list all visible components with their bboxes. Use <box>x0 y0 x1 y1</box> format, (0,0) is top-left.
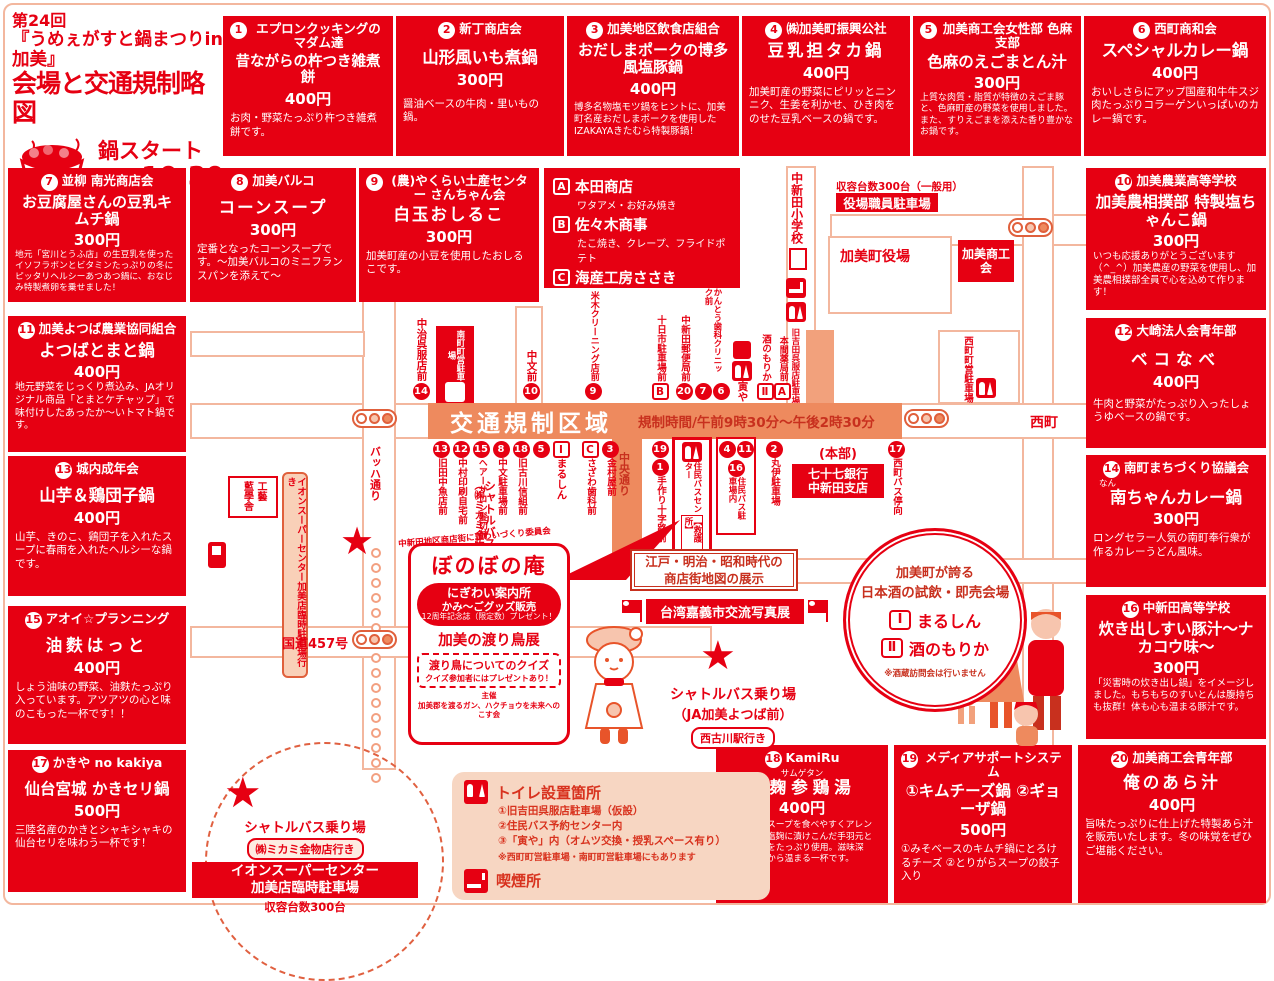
booth-marker: 13 <box>433 441 450 458</box>
booth-marker: 2 <box>766 441 783 458</box>
toilet-icon <box>682 442 702 462</box>
sake-site-marker: Ⅰ <box>553 441 570 458</box>
toilet-legend-title: トイレ設置箇所 <box>496 782 601 803</box>
title-map: 会場と交通規制略図 <box>12 70 224 128</box>
booth-number: 10 <box>1115 174 1132 191</box>
regulation-zone-label: 交通規制区域 <box>450 404 612 438</box>
mascot-illustration <box>574 620 654 746</box>
destination-badge: ㈱ミカミ金物店行き <box>247 838 364 860</box>
booth-marker: C <box>582 441 599 458</box>
shuttle-stop-ja: シャトルバス乗り場 （JA加美よつば前） 西古川駅行き <box>648 684 818 749</box>
route457-label: 国道457号 <box>282 633 348 652</box>
booth-marker: 15 <box>473 441 490 458</box>
map-spot: 中新田郵便局前 20 <box>672 288 696 402</box>
bank-branch: 中新田支店 <box>808 481 868 495</box>
booth-box-7: 7並柳 南光商店会 お豆腐屋さんの豆乳キムチ鍋 300円 地元「宮川とうふ店」の… <box>8 168 186 302</box>
booth-box-5: 5加美商工会女性部 色麻支部 色麻のえごまとん汁 300円 上質な肉質・脂質が特… <box>913 16 1081 156</box>
site-2-marker: Ⅱ <box>881 638 903 658</box>
minamimachi-parking-label: 南町町営駐車場 <box>446 328 464 382</box>
booth-number: 4 <box>765 22 782 39</box>
booth-box-15: 15アオイ☆プランニング 油麩はっと 400円 しょう油味の野菜、油麩たっぷり入… <box>8 606 186 744</box>
road-west-h <box>190 331 365 357</box>
booth-number: 3 <box>586 22 603 39</box>
booth-box-1: 1エプロンクッキングのマダム達 昔ながらの杵つき雑煮餅 400円 お肉・野菜たっ… <box>223 16 393 156</box>
sake-tasting-circle: 加美町が誇る 日本酒の試飲・即売会場 Ⅰまるしん Ⅱ酒のもりか ※酒蔵訪問会は行… <box>843 528 1027 712</box>
booth-marker: 8 <box>493 441 510 458</box>
booth-number: 6 <box>1133 22 1150 39</box>
booth-marker: A <box>774 383 791 400</box>
booth-number: 8 <box>231 174 248 191</box>
page-title: 第24回 『うめぇがすと鍋まつりin加美』 会場と交通規制略図 鍋スタート 10… <box>12 12 224 191</box>
traffic-light-icon <box>1008 218 1053 237</box>
bonobono-title: ぼのぼの庵 <box>415 550 563 580</box>
facility-legend-box: トイレ設置箇所 ①旧吉田呉服店駐車場（仮設） ②住民バス予約センター内 ③「寅や… <box>452 772 770 900</box>
map-spot: 米木クリーニング店前 9 <box>581 288 605 402</box>
booth-number: 14 <box>1103 461 1120 478</box>
title-edition: 第24回 <box>12 12 224 30</box>
booth-marker: 11 <box>737 441 754 458</box>
office-parking-box: 役場職員駐車場 <box>836 193 938 212</box>
booth-number: 12 <box>1115 324 1132 341</box>
booth-number: 20 <box>1111 751 1128 768</box>
booth-box-2: 2新丁商店会 山形風いも煮鍋 300円 醤油ベースの牛肉・里いもの鍋。 <box>396 16 564 156</box>
facility-e-icon <box>733 341 751 359</box>
map-spot: 2 丸伊駐車場 <box>762 441 786 506</box>
booth-number: 7 <box>41 174 58 191</box>
traffic-light-icon <box>904 409 949 428</box>
school-building-icon <box>789 248 807 270</box>
booth-marker: 3 <box>602 441 619 458</box>
road-stub <box>806 330 834 405</box>
booth-box-13: 13城内成年会 山芋＆鶏団子鍋 400円 山芋、きのこ、鶏団子を入れたスープに春… <box>8 456 186 596</box>
edo-map-exhibit-box: 江戸・明治・昭和時代の 商店街地図の展示 <box>630 549 798 591</box>
map-spot: 中治呉服店前 14 <box>409 288 433 402</box>
booth-number: 16 <box>1122 601 1139 618</box>
booth-number: 2 <box>438 22 455 39</box>
hq-bank: (本部) 七十七銀行 中新田支店 <box>792 443 884 498</box>
booth-box-17: 17かきや no kakiya 仙台宮城 かきセリ鍋 500円 三陸名産のかきと… <box>8 750 186 892</box>
traffic-light-icon <box>352 409 397 428</box>
town-hall-label: 加美町役場 <box>840 246 910 266</box>
map-spot: 寅や <box>730 288 754 402</box>
booth-marker: 4 <box>719 441 736 458</box>
booth-marker: 18 <box>513 441 530 458</box>
school-label: 中新田小学校 <box>790 172 803 244</box>
booth-marker: 10 <box>523 383 540 400</box>
toilet-icon <box>464 780 488 804</box>
site-1-marker: Ⅰ <box>889 610 911 630</box>
toilet-icon <box>445 382 465 402</box>
nishimachi-parking-label: 西町町営駐車場 <box>962 336 972 403</box>
booth-marker: 17 <box>888 441 905 458</box>
title-festival: 『うめぇがすと鍋まつりin加美』 <box>12 30 224 70</box>
info-oval: にぎわい案内所 かみ～ごグッズ販売 12周年記念誌（限定数）プレゼント！ <box>417 583 561 626</box>
booth-marker: 20 <box>676 383 693 400</box>
booth-marker: 19 <box>652 441 669 458</box>
bank-name: 七十七銀行 <box>808 467 868 481</box>
stalls-abc-box: A 本田商店 ワタアメ・お好み焼き B 佐々木商事 たこ焼き、クレープ、フライド… <box>544 168 740 288</box>
taiwan-flag-icon <box>808 600 826 613</box>
gas-station-icon <box>208 542 226 568</box>
taiwan-flag-icon <box>622 600 640 613</box>
ion-parking-box: イオンスーパーセンター 加美店臨時駐車場 <box>192 862 418 898</box>
traffic-light-icon <box>352 630 397 649</box>
booth-number: 5 <box>920 22 937 39</box>
destination-badge: 西古川駅行き <box>691 727 775 749</box>
map-spot: Ⅰ まるしん <box>549 441 573 500</box>
bonobono-info-bubble: ぼのぼの庵 にぎわい案内所 かみ～ごグッズ販売 12周年記念誌（限定数）プレゼン… <box>408 543 570 745</box>
taiwan-photo-exhibit-box: 台湾嘉義市交流写真展 <box>646 599 804 624</box>
booth-number: 13 <box>55 462 72 479</box>
map-spot: 中文前 10 <box>519 288 543 402</box>
booth-number: 18 <box>765 751 782 768</box>
booth-marker: 7 <box>695 383 712 400</box>
map-spot: 3 金村屋前 <box>598 441 622 496</box>
kogei-building: 工藝 藍學舎 <box>228 476 278 518</box>
office-parking-caption: 収容台数300台（一般用） <box>836 179 963 194</box>
booth-marker: 6 <box>713 383 730 400</box>
minamimachi-parking-box: 南町町営駐車場 <box>436 326 474 404</box>
shuttle-route-dots <box>371 548 381 783</box>
map-spot: 17 西町バス停向 <box>884 441 908 515</box>
booth-number: 11 <box>18 322 35 339</box>
bird-exhibit-label: 加美の渡り鳥展 <box>415 629 563 650</box>
booth-box-16: 16中新田高等学校 炊き出しすい豚汁～ナカコウ味～ 300円 「災害時の炊き出し… <box>1086 595 1266 739</box>
start-label: 鍋スタート <box>98 140 224 163</box>
toilet-icon <box>732 361 752 381</box>
shoko-box: 加美商工会 <box>958 240 1014 282</box>
stall-letter: C <box>553 269 570 286</box>
quiz-box: 渡り鳥についてのクイズ クイズ参加者にはプレゼントあり！ <box>417 653 561 688</box>
stall-letter: A <box>553 178 570 195</box>
booth-box-19: 19メディアサポートシステム ①キムチーズ鍋 ②ギョーザ鍋 500円 ①みそベー… <box>894 745 1072 903</box>
toilet-icon <box>976 378 996 398</box>
booth-marker: 16 <box>728 460 745 477</box>
smoking-legend-title: 喫煙所 <box>496 870 541 891</box>
booth-box-20: 20加美商工会青年部 俺のあら汁 400円 旨味たっぷりに仕上げた特製あら汁を販… <box>1078 745 1266 903</box>
booth-marker: B <box>652 383 669 400</box>
booth-box-12: 12大崎法人会青年部 ベコなべ 400円 牛肉と野菜がたっぷり入ったしょうゆベー… <box>1086 318 1266 448</box>
regulation-time-label: 規制時間/午前9時30分～午後2時30分 <box>638 411 875 431</box>
booth-box-11: 11加美よつば農業協同組合 よつばとまと鍋 400円 地元野菜をじっくり煮込み、… <box>8 316 186 452</box>
shuttle-stop-star-icon <box>700 636 736 676</box>
booth-marker: 5 <box>533 441 550 458</box>
shuttle-stop-mikami-bound: シャトルバス乗り場 ㈱ミカミ金物店行き イオンスーパーセンター 加美店臨時駐車場… <box>192 816 418 915</box>
booth-box-4: 4㈱加美町振興公社 豆乳担タカ鍋 400円 加美町産の野菜にピリッとニンニク、生… <box>742 16 910 156</box>
stall-letter: B <box>553 216 570 233</box>
traffic-regulation-banner: 交通規制区域 規制時間/午前9時30分～午後2時30分 <box>428 403 902 439</box>
shuttle-stop-star-icon <box>340 522 374 560</box>
booth-box-10: 10加美農業高等学校 加美農相撲部 特製塩ちゃんこ鍋 300円 いつも応援ありが… <box>1086 168 1266 310</box>
booth-marker: 14 <box>413 383 430 400</box>
shuttle-stop-star-icon <box>224 772 262 814</box>
booth-marker: 9 <box>585 383 602 400</box>
booth-box-6: 6西町商和会 スペシャルカレー鍋 400円 おいしさらにアップ国産和牛牛スジ肉た… <box>1084 16 1266 156</box>
booth-number: 1 <box>230 22 247 39</box>
map-spot: 本間薬局前 A <box>770 288 794 402</box>
booth-number: 15 <box>25 612 42 629</box>
booth-number: 17 <box>32 756 49 773</box>
map-spot: かんとう歯科クリニック前 7 6 <box>694 288 730 402</box>
map-spot: 十日市駐車場前 B <box>648 288 672 402</box>
nishimachi-label: 西町 <box>1030 412 1058 432</box>
booth-number: 9 <box>366 174 383 191</box>
booth-box-14: 14南町まちづくり協議会 なん 南ちゃんカレー鍋 300円 ロングセラー人気の南… <box>1086 455 1266 587</box>
booth-box-8: 8加美バルコ コーンスープ 300円 定番となったコーンスープです。～加美バルコ… <box>190 168 356 302</box>
booth-number: 19 <box>901 751 918 768</box>
booth-box-3: 3加美地区飲食店組合 おだしまポークの博多風塩豚鍋 400円 博多名物塩モツ鍋を… <box>567 16 739 156</box>
smoking-icon <box>464 869 488 893</box>
booth-marker: 1 <box>652 459 669 476</box>
booth-box-9: 9(農)やくらい土産センター さんちゃん会 白玉おしるこ 300円 加美町産の小… <box>359 168 539 302</box>
booth-marker: 12 <box>453 441 470 458</box>
resident-bus-parking-box: 4 11 16 住民バス駐車場内 <box>716 437 756 535</box>
